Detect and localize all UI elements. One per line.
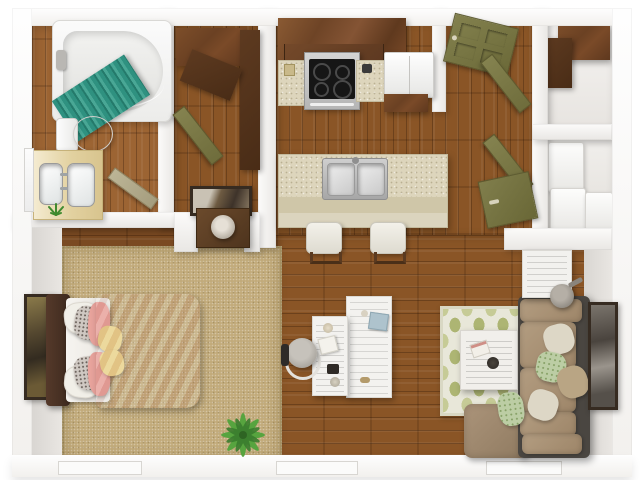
- desk-glass: [330, 377, 340, 387]
- living-wall-art: [588, 302, 618, 410]
- lamp-spout: [568, 277, 584, 288]
- chair-back: [281, 344, 289, 366]
- floorplan-canvas: [0, 0, 640, 480]
- desk-coins: [360, 377, 370, 383]
- desk-cup: [323, 323, 333, 333]
- desk-camera: [327, 364, 339, 374]
- sofa-arm-bottom: [522, 434, 582, 454]
- sofa-lamp: [548, 276, 584, 312]
- apartment-floorplan: [0, 0, 640, 480]
- office-chair: [281, 334, 319, 378]
- sectional-sofa: [518, 296, 590, 458]
- desk-item-round: [361, 310, 368, 317]
- living-room: [0, 0, 640, 480]
- desk-return: [346, 296, 392, 398]
- table-decor: [487, 357, 499, 369]
- desk-papers: [368, 312, 389, 331]
- chair-seat: [287, 338, 317, 368]
- coffee-table: [460, 330, 518, 390]
